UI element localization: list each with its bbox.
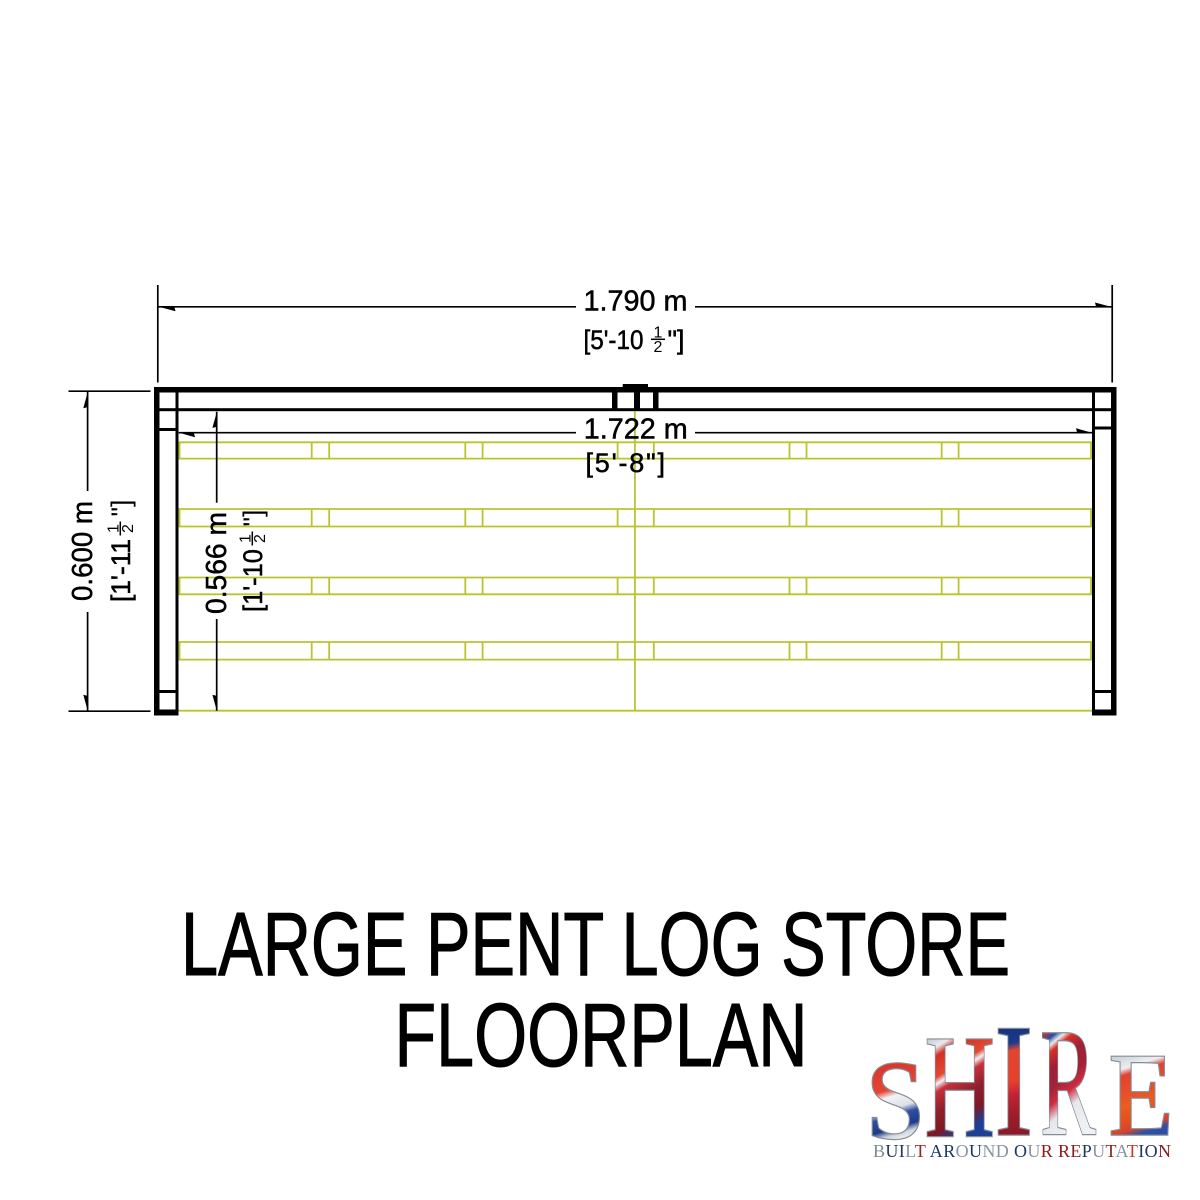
svg-text:1.722 m: 1.722 m — [584, 414, 688, 446]
svg-text:2: 2 — [252, 534, 269, 543]
svg-text:[1'-10: [1'-10 — [238, 549, 268, 612]
svg-text:"]: "] — [106, 500, 136, 517]
svg-text:1.790 m: 1.790 m — [584, 286, 688, 318]
svg-text:FLOORPLAN: FLOORPLAN — [395, 986, 808, 1086]
svg-text:2: 2 — [120, 524, 137, 533]
svg-text:"]: "] — [668, 325, 685, 355]
svg-text:BUILT AROUND OUR REPUTATION: BUILT AROUND OUR REPUTATION — [873, 1141, 1171, 1161]
svg-text:2: 2 — [654, 339, 663, 356]
svg-text:LARGE PENT LOG STORE: LARGE PENT LOG STORE — [181, 895, 1010, 995]
svg-text:[5'-8"]: [5'-8"] — [586, 448, 666, 478]
svg-text:[1'-11: [1'-11 — [106, 539, 136, 602]
svg-text:[5'-10: [5'-10 — [584, 325, 644, 355]
svg-text:0.566 m: 0.566 m — [201, 512, 233, 614]
svg-text:0.600 m: 0.600 m — [67, 501, 99, 601]
svg-text:"]: "] — [238, 510, 268, 527]
